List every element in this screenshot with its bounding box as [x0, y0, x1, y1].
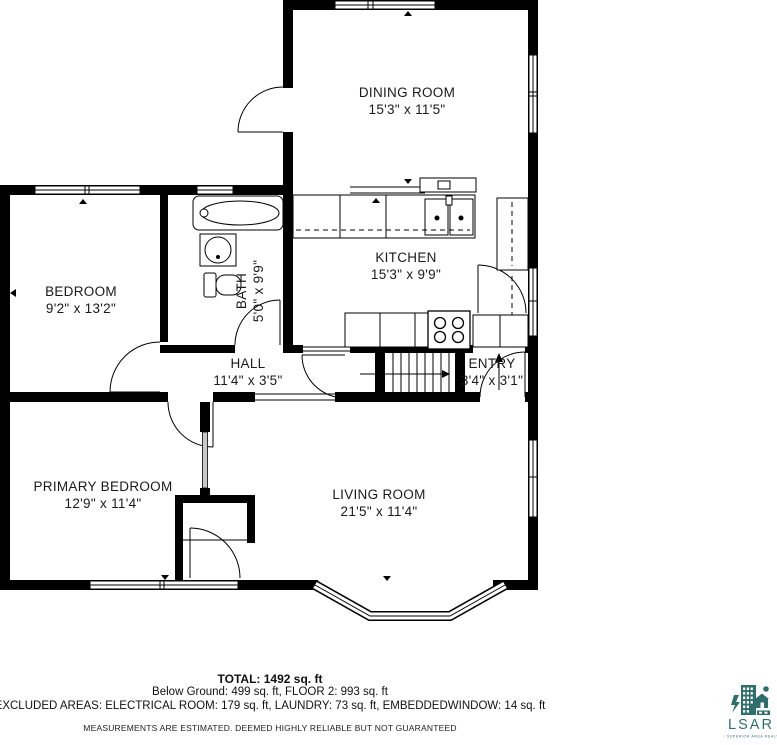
room-dims: 11'4" x 3'5" [213, 372, 282, 389]
room-dims: 12'9" x 11'4" [33, 495, 172, 512]
area-summary: TOTAL: 1492 sq. ft Below Ground: 499 sq.… [0, 672, 545, 733]
room-dims: 3'4" x 3'1" [461, 372, 523, 389]
room-name: BEDROOM [45, 283, 117, 300]
room-name: BATH [233, 260, 250, 322]
floor-areas-text: Below Ground: 499 sq. ft, FLOOR 2: 993 s… [0, 686, 545, 700]
building-icon [731, 685, 770, 715]
room-label-entry: ENTRY 3'4" x 3'1" [461, 355, 523, 389]
stairs [360, 353, 450, 392]
room-dims: 21'5" x 11'4" [332, 503, 425, 520]
room-dims: 15'3" x 11'5" [359, 101, 455, 118]
room-name: LIVING ROOM [332, 486, 425, 503]
room-label-kitchen: KITCHEN 15'3" x 9'9" [371, 249, 441, 283]
lsar-logo-icon: LSAR LAKE SUPERIOR AREA REALTORS [724, 681, 777, 745]
total-area-text: TOTAL: 1492 sq. ft [0, 672, 545, 686]
room-dims: 5'0" x 9'9" [250, 260, 267, 322]
bathtub-icon [193, 196, 283, 230]
room-dims: 15'3" x 9'9" [371, 266, 441, 283]
disclaimer-text: MEASUREMENTS ARE ESTIMATED. DEEMED HIGHL… [0, 723, 545, 733]
sliding-door [203, 432, 208, 488]
room-label-living-room: LIVING ROOM 21'5" x 11'4" [332, 486, 425, 520]
sun-icon [763, 686, 769, 692]
bay-window [315, 585, 505, 616]
excluded-areas-text: EXCLUDED AREAS: ELECTRICAL ROOM: 179 sq.… [0, 700, 545, 714]
room-label-primary-bedroom: PRIMARY BEDROOM 12'9" x 11'4" [33, 478, 172, 512]
floorplan-page: DINING ROOM 15'3" x 11'5" KITCHEN 15'3" … [0, 0, 777, 745]
house-roof-icon [755, 694, 769, 700]
room-name: DINING ROOM [359, 84, 455, 101]
room-label-hall: HALL 11'4" x 3'5" [213, 355, 282, 389]
lsar-logo: LSAR LAKE SUPERIOR AREA REALTORS [724, 681, 777, 745]
room-label-dining-room: DINING ROOM 15'3" x 11'5" [359, 84, 455, 118]
room-name: KITCHEN [371, 249, 441, 266]
room-label-bath: BATH 5'0" x 9'9" [233, 260, 267, 322]
bath-sink-icon [200, 234, 236, 266]
lightning-icon [731, 695, 740, 713]
room-label-bedroom: BEDROOM 9'2" x 13'2" [45, 283, 117, 317]
room-name: PRIMARY BEDROOM [33, 478, 172, 495]
room-name: HALL [213, 355, 282, 372]
room-dims: 9'2" x 13'2" [45, 300, 117, 317]
lsar-subtitle: LAKE SUPERIOR AREA REALTORS [724, 735, 777, 739]
lsar-acronym: LSAR [728, 717, 774, 733]
stove-icon [428, 311, 470, 349]
room-name: ENTRY [461, 355, 523, 372]
